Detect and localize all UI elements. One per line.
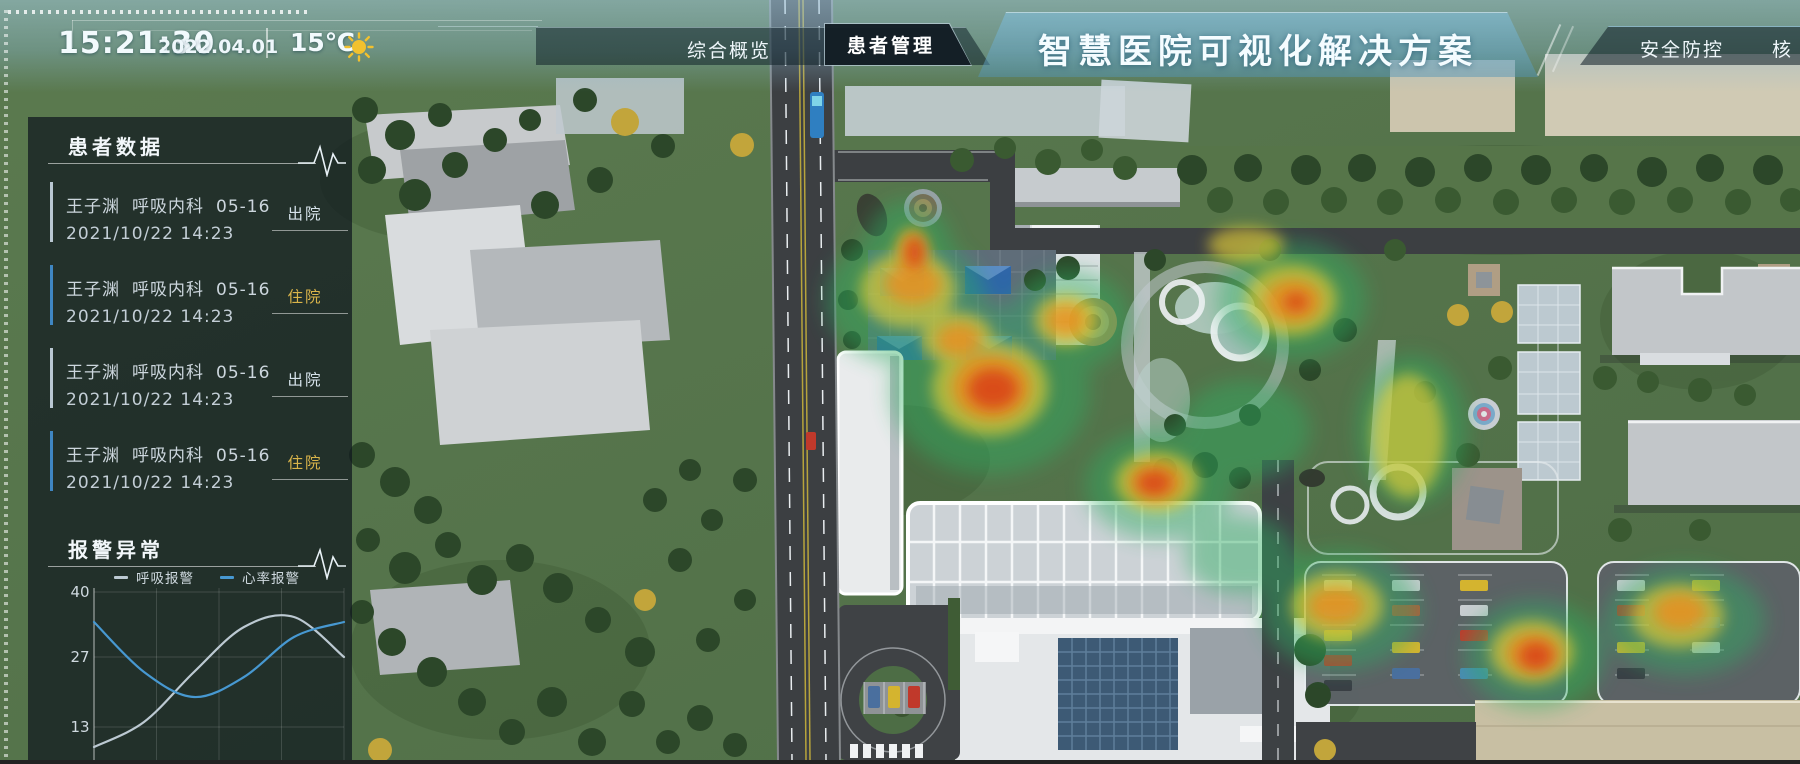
patient-row[interactable]: 王子渊呼吸内科05-16 2021/10/22 14:23 住院	[50, 251, 338, 329]
patient-department: 呼吸内科	[132, 197, 204, 217]
patient-data-title: 患者数据	[68, 131, 164, 160]
status-badge-rule	[272, 230, 348, 231]
status-badge-rule	[272, 396, 348, 397]
patient-data-rule	[48, 163, 316, 164]
patient-datetime: 2021/10/22 14:23	[66, 224, 234, 244]
patient-row[interactable]: 王子渊呼吸内科05-16 2021/10/22 14:23 出院	[50, 334, 338, 412]
patient-name: 王子渊	[66, 197, 120, 217]
patient-name: 王子渊	[66, 280, 120, 300]
patient-department: 呼吸内科	[132, 280, 204, 300]
patient-summary: 王子渊呼吸内科05-16	[66, 275, 282, 300]
status-badge: 住院	[260, 451, 350, 473]
legend-dash-breath	[114, 576, 128, 579]
smart-hospital-dashboard: 15:21:30 2022.04.01 15℃ 综合概览 患者管理 智慧医院可视…	[0, 0, 1800, 760]
patient-row[interactable]: 王子渊呼吸内科05-16 2021/10/22 14:23 住院	[50, 417, 338, 495]
patient-datetime: 2021/10/22 14:23	[66, 473, 234, 493]
patient-summary: 王子渊呼吸内科05-16	[66, 441, 282, 466]
status-accent-bar	[50, 265, 53, 325]
status-badge-rule	[272, 479, 348, 480]
status-badge: 出院	[260, 202, 350, 224]
patient-row[interactable]: 王子渊呼吸内科05-16 2021/10/22 14:23 出院	[50, 168, 338, 246]
patient-datetime: 2021/10/22 14:23	[66, 390, 234, 410]
y-tick: 13	[70, 718, 89, 736]
status-badge-rule	[272, 313, 348, 314]
alarm-chart: 132740	[36, 582, 348, 760]
topbar-divider	[266, 28, 268, 58]
y-tick: 40	[70, 583, 89, 601]
patient-datetime: 2021/10/22 14:23	[66, 307, 234, 327]
nav-accent-line	[438, 26, 538, 27]
y-tick: 27	[70, 648, 89, 666]
tab-patient-management-label: 患者管理	[847, 31, 949, 58]
alarm-section-title: 报警异常	[68, 534, 164, 563]
clock-date: 2022.04.01	[158, 36, 278, 58]
patient-department: 呼吸内科	[132, 363, 204, 383]
sun-icon	[344, 32, 374, 66]
page-title: 智慧医院可视化解决方案	[978, 24, 1538, 73]
status-accent-bar	[50, 431, 53, 491]
tab-overview[interactable]: 综合概览	[648, 36, 810, 63]
tab-patient-management[interactable]: 患者管理	[824, 23, 972, 66]
status-badge: 出院	[260, 368, 350, 390]
legend-dash-heart	[220, 576, 234, 579]
patient-department: 呼吸内科	[132, 446, 204, 466]
tab-truncated[interactable]: 核	[1772, 35, 1800, 62]
top-dotted-border	[8, 10, 310, 14]
status-accent-bar	[50, 182, 53, 242]
main-road	[770, 0, 840, 760]
patient-name: 王子渊	[66, 446, 120, 466]
left-dotted-border	[4, 10, 8, 758]
frame-line-1	[72, 20, 542, 21]
patient-summary: 王子渊呼吸内科05-16	[66, 358, 282, 383]
patient-name: 王子渊	[66, 363, 120, 383]
status-accent-bar	[50, 348, 53, 408]
tab-security[interactable]: 安全防控	[1622, 35, 1742, 62]
status-badge: 住院	[260, 285, 350, 307]
patient-summary: 王子渊呼吸内科05-16	[66, 192, 282, 217]
ecg-icon	[298, 542, 346, 584]
left-panel: 患者数据 王子渊呼吸内科05-16 2021/10/22 14:23 出院 王子…	[28, 117, 352, 760]
